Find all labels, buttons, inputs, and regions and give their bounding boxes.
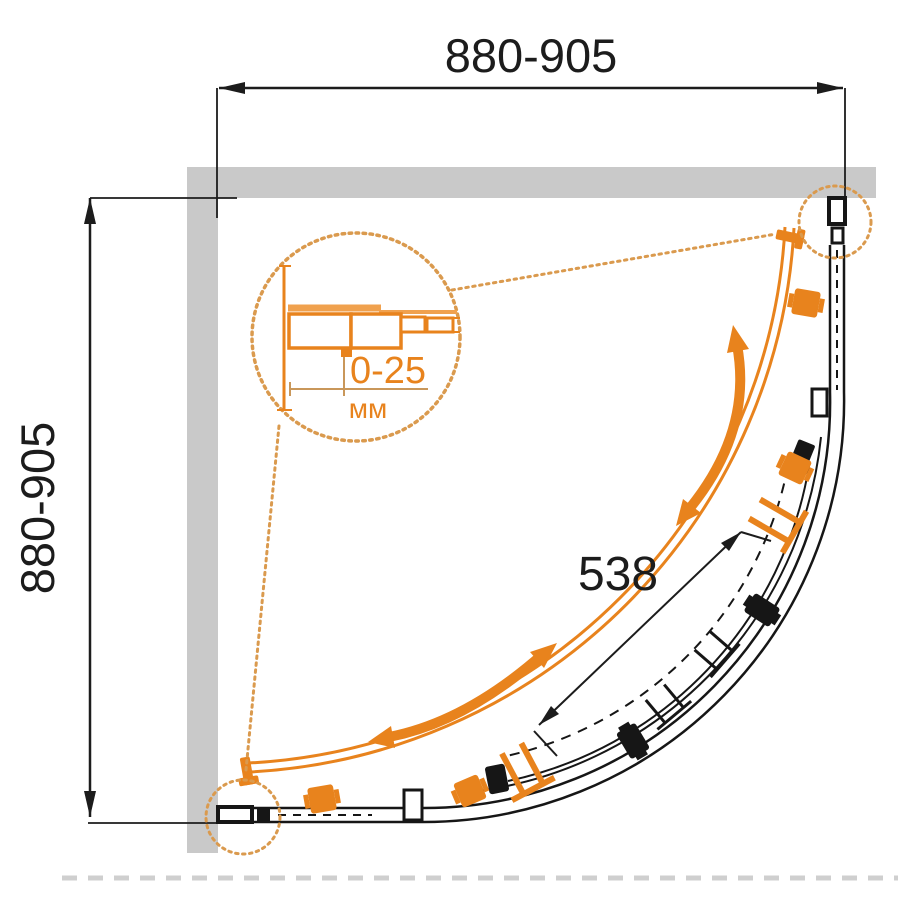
diagram-canvas: 880-905 880-905	[0, 0, 900, 900]
profile-channel-left	[289, 314, 351, 348]
profile-channel-right	[351, 314, 401, 348]
door-opening-witness-bottom	[534, 731, 557, 756]
left-dim-arrow-top	[84, 198, 96, 224]
top-dim-arrow-left	[219, 82, 245, 94]
bottom-profile-anchor	[218, 807, 252, 822]
bottom-glass-clamp	[404, 790, 422, 820]
door-handle-1	[743, 488, 807, 553]
profile-step-box-1	[401, 317, 425, 332]
motion-arrow-lower-head-left	[368, 726, 395, 748]
right-profile-anchor	[829, 198, 845, 224]
right-profile-block	[832, 228, 843, 243]
adjustment-unit-label: мм	[349, 393, 388, 424]
left-dimension-label: 880-905	[11, 422, 64, 595]
left-wall	[187, 167, 218, 853]
motion-arrow-upper-curve	[690, 345, 740, 508]
right-glass-clamp	[812, 389, 827, 416]
top-dim-arrow-right	[817, 82, 843, 94]
shower-enclosure-diagram: 880-905 880-905	[0, 0, 900, 900]
bottom-profile-block	[257, 808, 270, 822]
detail-leader-bottom	[246, 426, 279, 770]
door-opening-label: 538	[578, 548, 658, 601]
black-rollers	[485, 439, 816, 795]
door-roller-4	[302, 783, 342, 815]
motion-arrow-lower-curve	[389, 654, 543, 737]
adjustment-range-label: 0-25	[350, 350, 426, 392]
motion-arrow-upper-head-top	[727, 325, 749, 353]
detail-callout	[206, 186, 871, 854]
left-dim-arrow-bottom	[84, 791, 96, 817]
profile-step-box-2	[427, 318, 453, 332]
door-roller-1	[786, 287, 826, 319]
top-wall	[187, 167, 876, 198]
profile-cross-section: 0-25 мм	[277, 266, 460, 424]
top-dimension-label: 880-905	[445, 29, 618, 82]
detail-leader-top	[452, 234, 776, 290]
